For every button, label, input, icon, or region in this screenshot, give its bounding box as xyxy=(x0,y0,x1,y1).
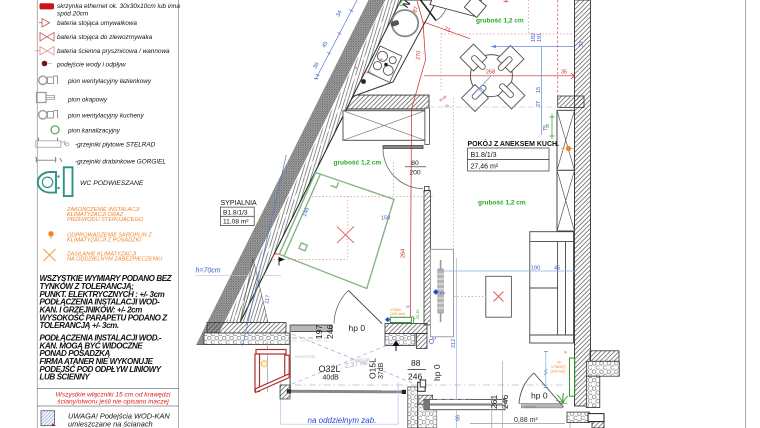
svg-text:264: 264 xyxy=(401,249,407,258)
svg-text:37dB: 37dB xyxy=(378,362,385,379)
svg-text:0,88 m²: 0,88 m² xyxy=(514,417,538,424)
svg-text:umieszczane na ścianach: umieszczane na ścianach xyxy=(68,419,153,428)
svg-text:VF: VF xyxy=(557,361,561,365)
svg-text:bateria ścienna prysznicowa /: bateria ścienna prysznicowa / wannowa xyxy=(57,48,170,55)
svg-text:-grzejniki drabinkowe GORGIEL: -grzejniki drabinkowe GORGIEL xyxy=(75,159,166,166)
svg-text:(100 mm): (100 mm) xyxy=(551,370,566,374)
svg-text:45: 45 xyxy=(554,266,560,272)
svg-text:pion kanalizacyjny: pion kanalizacyjny xyxy=(67,128,121,135)
svg-text:nawietrzak: nawietrzak xyxy=(350,357,371,362)
svg-text:grubość 1,2 cm: grubość 1,2 cm xyxy=(334,160,382,167)
svg-text:grubość 1,2 cm: grubość 1,2 cm xyxy=(478,200,526,207)
svg-text:246: 246 xyxy=(325,325,335,339)
svg-text:hp 0: hp 0 xyxy=(432,364,442,381)
svg-text:37: 37 xyxy=(579,41,585,47)
svg-text:podejście wody i odpływ: podejście wody i odpływ xyxy=(56,62,126,69)
svg-text:pion wentylacyjny kucheny: pion wentylacyjny kucheny xyxy=(67,113,144,120)
svg-text:80: 80 xyxy=(411,160,419,167)
svg-text:>: > xyxy=(564,350,567,356)
svg-text:na oddzielnym zab.: na oddzielnym zab. xyxy=(308,416,377,425)
svg-text:190: 190 xyxy=(531,266,540,272)
svg-text:KLIMATYZACJI Z POSADZKI: KLIMATYZACJI Z POSADZKI xyxy=(67,238,141,244)
svg-text:B1.8/1/3: B1.8/1/3 xyxy=(223,209,248,216)
svg-text:270: 270 xyxy=(416,50,423,60)
svg-text:Wszystkie włączniki 15 cm od k: Wszystkie włączniki 15 cm od krawędzi xyxy=(56,391,171,398)
svg-text:NA ODDZIELNYM ZABEZPIECZENIU: NA ODDZIELNYM ZABEZPIECZENIU xyxy=(67,257,163,263)
svg-text:ściany/otworu jeśli nie opisan: ściany/otworu jeśli nie opisano inaczej xyxy=(57,398,169,405)
svg-text:(100 mm): (100 mm) xyxy=(390,312,405,316)
svg-text:20: 20 xyxy=(546,124,550,128)
svg-text:15: 15 xyxy=(536,87,542,93)
svg-text:pion wentylacyjny łazienkowy: pion wentylacyjny łazienkowy xyxy=(67,78,152,85)
svg-text:-grzejniki płytowe STELRAD: -grzejniki płytowe STELRAD xyxy=(75,142,156,149)
svg-text:nawietrzak: nawietrzak xyxy=(524,405,537,409)
svg-text:grubość 1,2 cm: grubość 1,2 cm xyxy=(476,18,524,25)
svg-text:bateria stojąca umywalkowa: bateria stojąca umywalkowa xyxy=(57,20,137,27)
svg-text:17/600(?): 17/600(?) xyxy=(551,365,566,369)
svg-text:h=70cm: h=70cm xyxy=(196,268,221,275)
svg-text:O32L: O32L xyxy=(319,364,341,374)
svg-text:27: 27 xyxy=(536,101,542,107)
svg-text:88: 88 xyxy=(411,358,421,368)
svg-text:35: 35 xyxy=(561,70,567,76)
svg-text:150: 150 xyxy=(381,216,390,222)
svg-text:WC PODWIESZANE: WC PODWIESZANE xyxy=(80,180,144,187)
svg-text:261: 261 xyxy=(489,395,499,409)
svg-text:20 20: 20 20 xyxy=(416,309,420,319)
svg-text:pion okapowy: pion okapowy xyxy=(67,97,108,104)
svg-text:27,46 m²: 27,46 m² xyxy=(471,164,499,171)
svg-text:nawietrzak: nawietrzak xyxy=(295,354,316,359)
svg-text:B1.8/1/3: B1.8/1/3 xyxy=(471,152,497,159)
svg-text:TOLERANCJĄ +/- 3cm.: TOLERANCJĄ +/- 3cm. xyxy=(40,321,119,330)
svg-text:PRZEWODU STERUJĄCEGO: PRZEWODU STERUJĄCEGO xyxy=(67,217,144,223)
svg-text:bateria stojąca do zlewozmywak: bateria stojąca do zlewozmywaka xyxy=(57,34,153,41)
svg-text:11,08 m²: 11,08 m² xyxy=(223,219,249,226)
svg-text:hp 0: hp 0 xyxy=(531,391,548,401)
svg-text:hp 0: hp 0 xyxy=(349,323,366,333)
svg-text:SYPIALNIA: SYPIALNIA xyxy=(221,200,258,207)
svg-text:PV: PV xyxy=(440,291,446,296)
svg-text:197: 197 xyxy=(314,325,324,339)
svg-text:spód 20cm: spód 20cm xyxy=(57,11,89,18)
svg-text:246: 246 xyxy=(500,395,510,409)
svg-text:212: 212 xyxy=(451,339,457,348)
svg-text:40dB: 40dB xyxy=(323,375,340,382)
svg-text:LUB ŚCIENNY: LUB ŚCIENNY xyxy=(40,373,91,382)
svg-text:191: 191 xyxy=(537,33,543,42)
svg-text:POKÓJ Z ANEKSEM KUCH.: POKÓJ Z ANEKSEM KUCH. xyxy=(468,139,560,148)
svg-text:skrzynka ethernet ok. 30x30x10: skrzynka ethernet ok. 30x30x10cm lub inn… xyxy=(57,3,180,10)
svg-text:258: 258 xyxy=(486,70,495,76)
svg-text:66: 66 xyxy=(456,415,462,421)
